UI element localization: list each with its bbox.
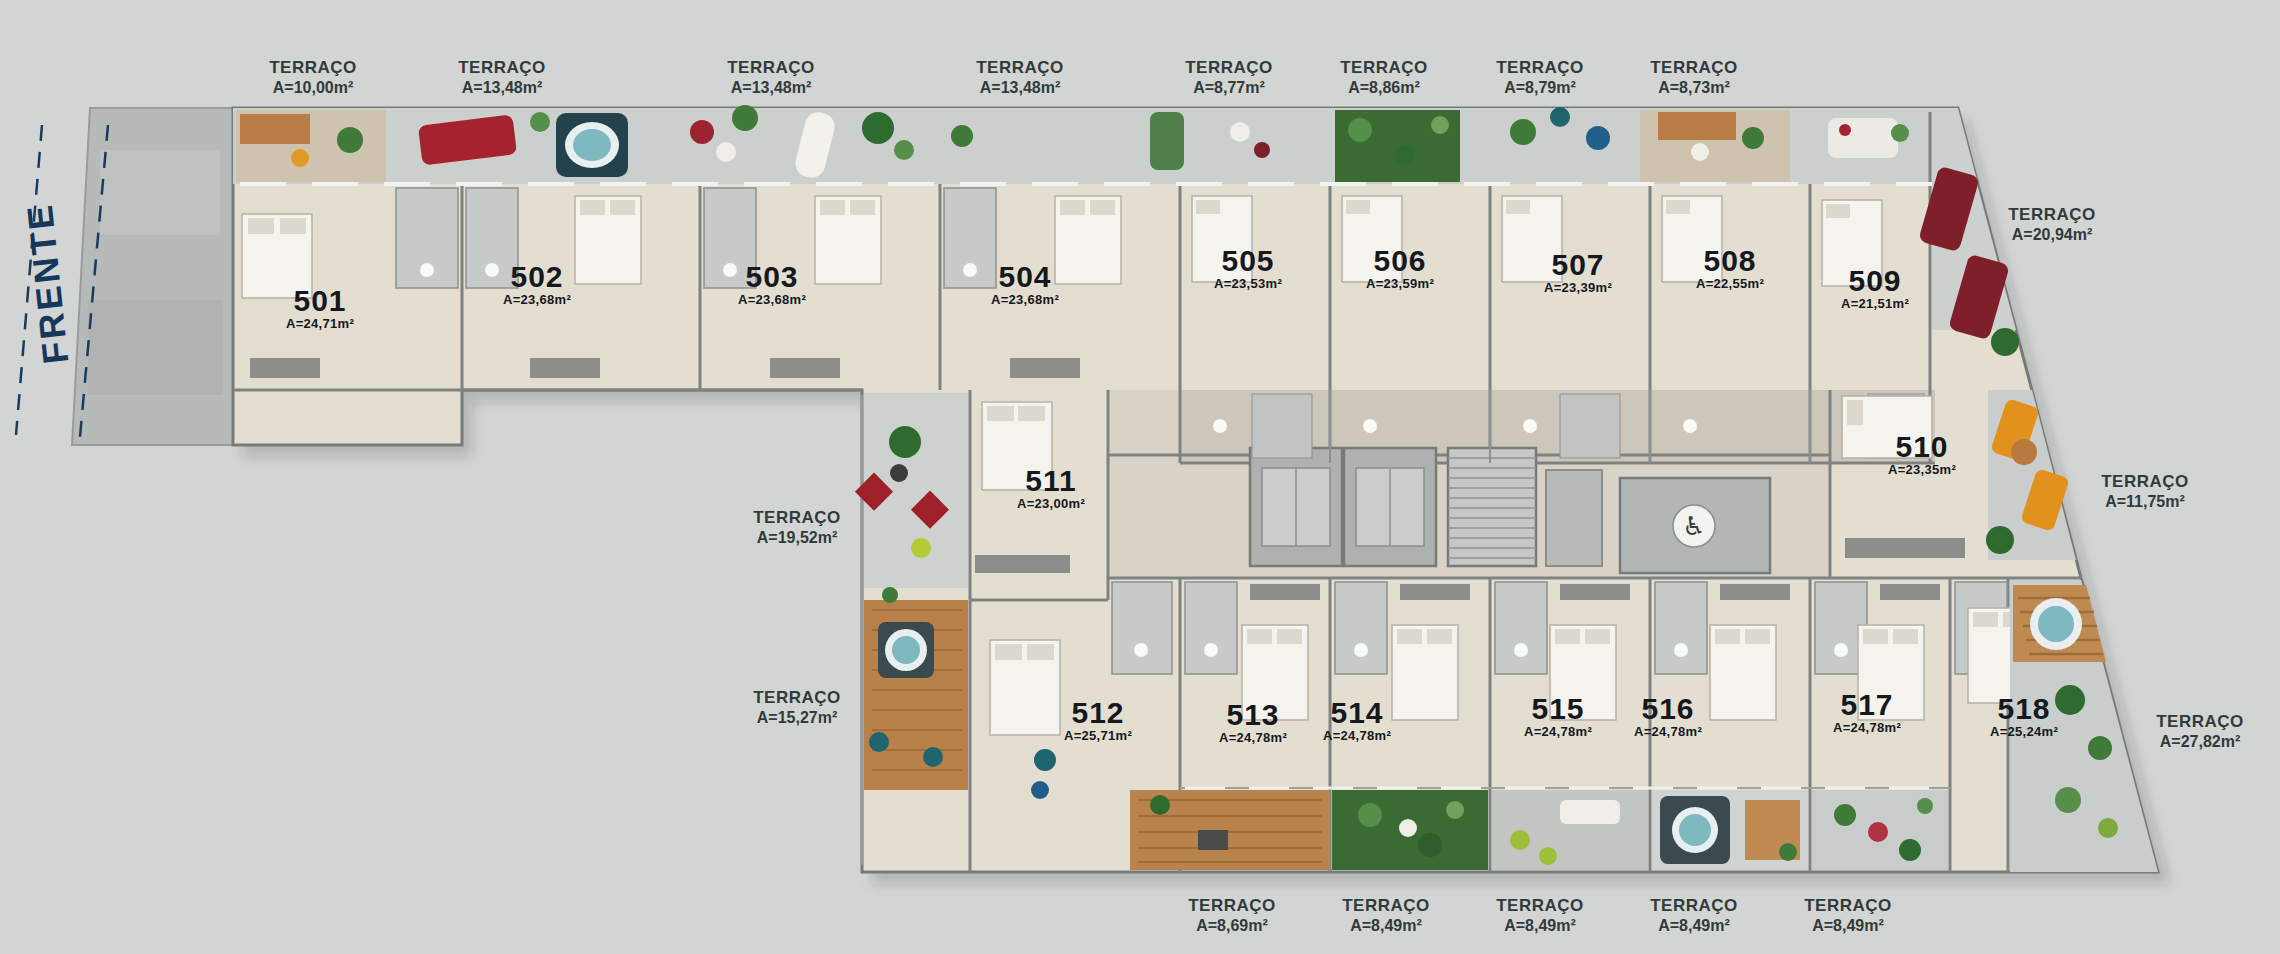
plant <box>889 426 921 458</box>
table <box>1399 819 1417 837</box>
plant <box>882 587 898 603</box>
plant <box>1150 795 1170 815</box>
plant <box>1348 118 1372 142</box>
plant <box>1917 798 1933 814</box>
lobby-floor <box>1108 390 1180 513</box>
plant <box>2055 787 2081 813</box>
lime-pouf <box>911 538 931 558</box>
plant <box>1899 839 1921 861</box>
elevator-core <box>1250 448 1436 566</box>
plant <box>2055 685 2085 715</box>
table <box>716 142 736 162</box>
bottom-terraces <box>1130 790 1948 870</box>
pouf <box>1510 830 1530 850</box>
plant <box>1986 526 2014 554</box>
plant <box>1779 843 1797 861</box>
plant <box>1395 145 1415 165</box>
plant <box>1991 328 2019 356</box>
chair <box>690 120 714 144</box>
lounger <box>1560 800 1620 824</box>
floor-plan: ♿ <box>0 0 2280 954</box>
floor-plan-drawing: ♿ <box>0 0 2280 954</box>
desk <box>1658 112 1736 140</box>
pouf <box>2098 818 2118 838</box>
table <box>2011 439 2037 465</box>
accessible-wc: ♿ <box>1620 478 1770 573</box>
pouf <box>1550 107 1570 127</box>
pouf <box>923 747 943 767</box>
terrace-red-poufs <box>855 393 968 588</box>
pouf <box>1034 749 1056 771</box>
front-deck <box>72 108 233 445</box>
pouf <box>1868 822 1888 842</box>
table <box>1230 122 1250 142</box>
service-shaft <box>1546 470 1602 566</box>
sofa <box>1828 118 1898 158</box>
terrace-wood-hot-tub <box>864 587 968 790</box>
table <box>1198 830 1228 850</box>
pouf <box>869 732 889 752</box>
wheelchair-icon: ♿ <box>1682 511 1705 541</box>
chair <box>291 149 309 167</box>
plant <box>1834 804 1856 826</box>
desk <box>240 114 310 144</box>
daybed <box>1150 112 1184 170</box>
stairs <box>1448 448 1536 566</box>
pouf <box>1586 126 1610 150</box>
plant <box>1431 116 1449 134</box>
plant <box>2088 736 2112 760</box>
pouf <box>1031 781 1049 799</box>
chair <box>1254 142 1270 158</box>
chair <box>1691 143 1709 161</box>
table <box>890 464 908 482</box>
pouf <box>1539 847 1557 865</box>
